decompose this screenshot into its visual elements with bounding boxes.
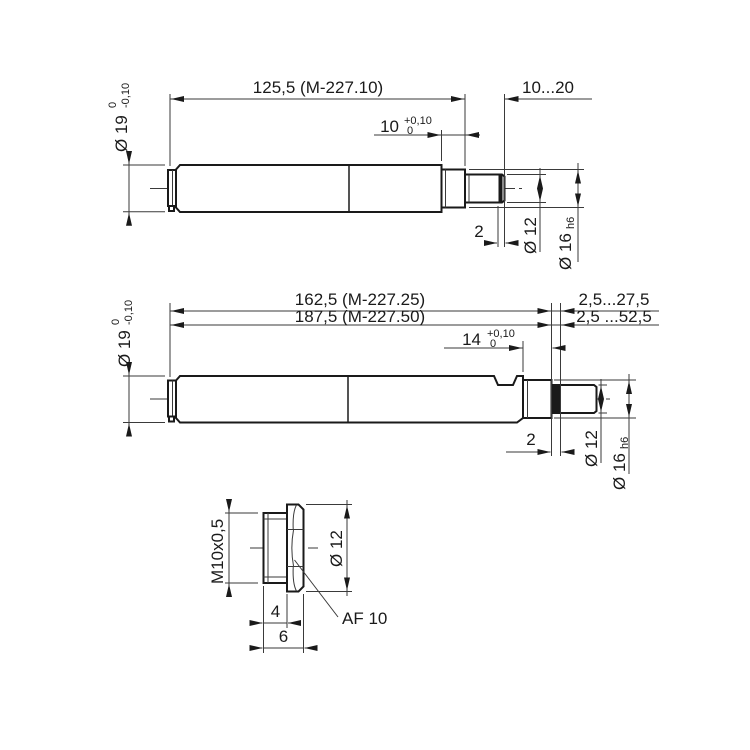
- end-cap-stub: [169, 417, 174, 422]
- wrench-flats-label: AF 10: [342, 609, 387, 628]
- dim-label-dia19-middle: Ø 19: [115, 330, 134, 367]
- dia19-tol-upper: 0: [107, 102, 119, 108]
- shaft-body: [176, 376, 523, 423]
- dim-label-dia19-top: Ø 19: [112, 115, 131, 152]
- dim-label-total-length: 6: [279, 627, 288, 646]
- dim-label-step-middle: 14: [462, 330, 481, 349]
- technical-drawing: 125,5 (M-227.10) 10...20 10 +0,10 0 Ø 19…: [0, 0, 750, 750]
- dim-label-overall-top: 125,5 (M-227.10): [253, 78, 383, 97]
- dia19-tol-lower: -0,10: [120, 83, 132, 108]
- tolerance-lower: 0: [490, 338, 496, 350]
- fit-label-h6-middle: h6: [619, 437, 631, 449]
- dim-label-range-top: 10...20: [522, 78, 574, 97]
- fit-label-h6-top: h6: [565, 217, 577, 229]
- hex-head: [287, 505, 304, 592]
- dia19-tol-lower: -0,10: [123, 300, 135, 325]
- dim-label-dia16-top: Ø 16: [556, 233, 575, 270]
- tolerance-lower: 0: [407, 125, 413, 137]
- dim-label-overall-50: 187,5 (M-227.50): [295, 307, 425, 326]
- middle-shaft-outline: [150, 376, 610, 423]
- end-cap-stub: [169, 206, 174, 211]
- dim-label-dia12-top: Ø 12: [521, 217, 540, 254]
- dim-label-dia12-middle: Ø 12: [582, 430, 601, 467]
- technical-drawing-page: 125,5 (M-227.10) 10...20 10 +0,10 0 Ø 19…: [0, 0, 750, 750]
- dim-label-dia16-middle: Ø 16: [610, 453, 629, 490]
- dim-label-groove-top: 2: [474, 222, 483, 241]
- dim-label-range-50: 2,5 ...52,5: [576, 307, 652, 326]
- dim-label-dia12-head: Ø 12: [327, 530, 346, 567]
- dim-label-thread-length: 4: [271, 602, 280, 621]
- tip-groove: [499, 176, 503, 202]
- dim-label-step-top: 10: [380, 117, 399, 136]
- dia19-tol-upper: 0: [110, 319, 122, 325]
- shaft-body: [176, 165, 442, 212]
- dim-label-thread: M10x0,5: [208, 519, 227, 584]
- dim-label-groove-middle: 2: [526, 430, 535, 449]
- threaded-section: [264, 513, 288, 583]
- tip-groove: [553, 386, 561, 412]
